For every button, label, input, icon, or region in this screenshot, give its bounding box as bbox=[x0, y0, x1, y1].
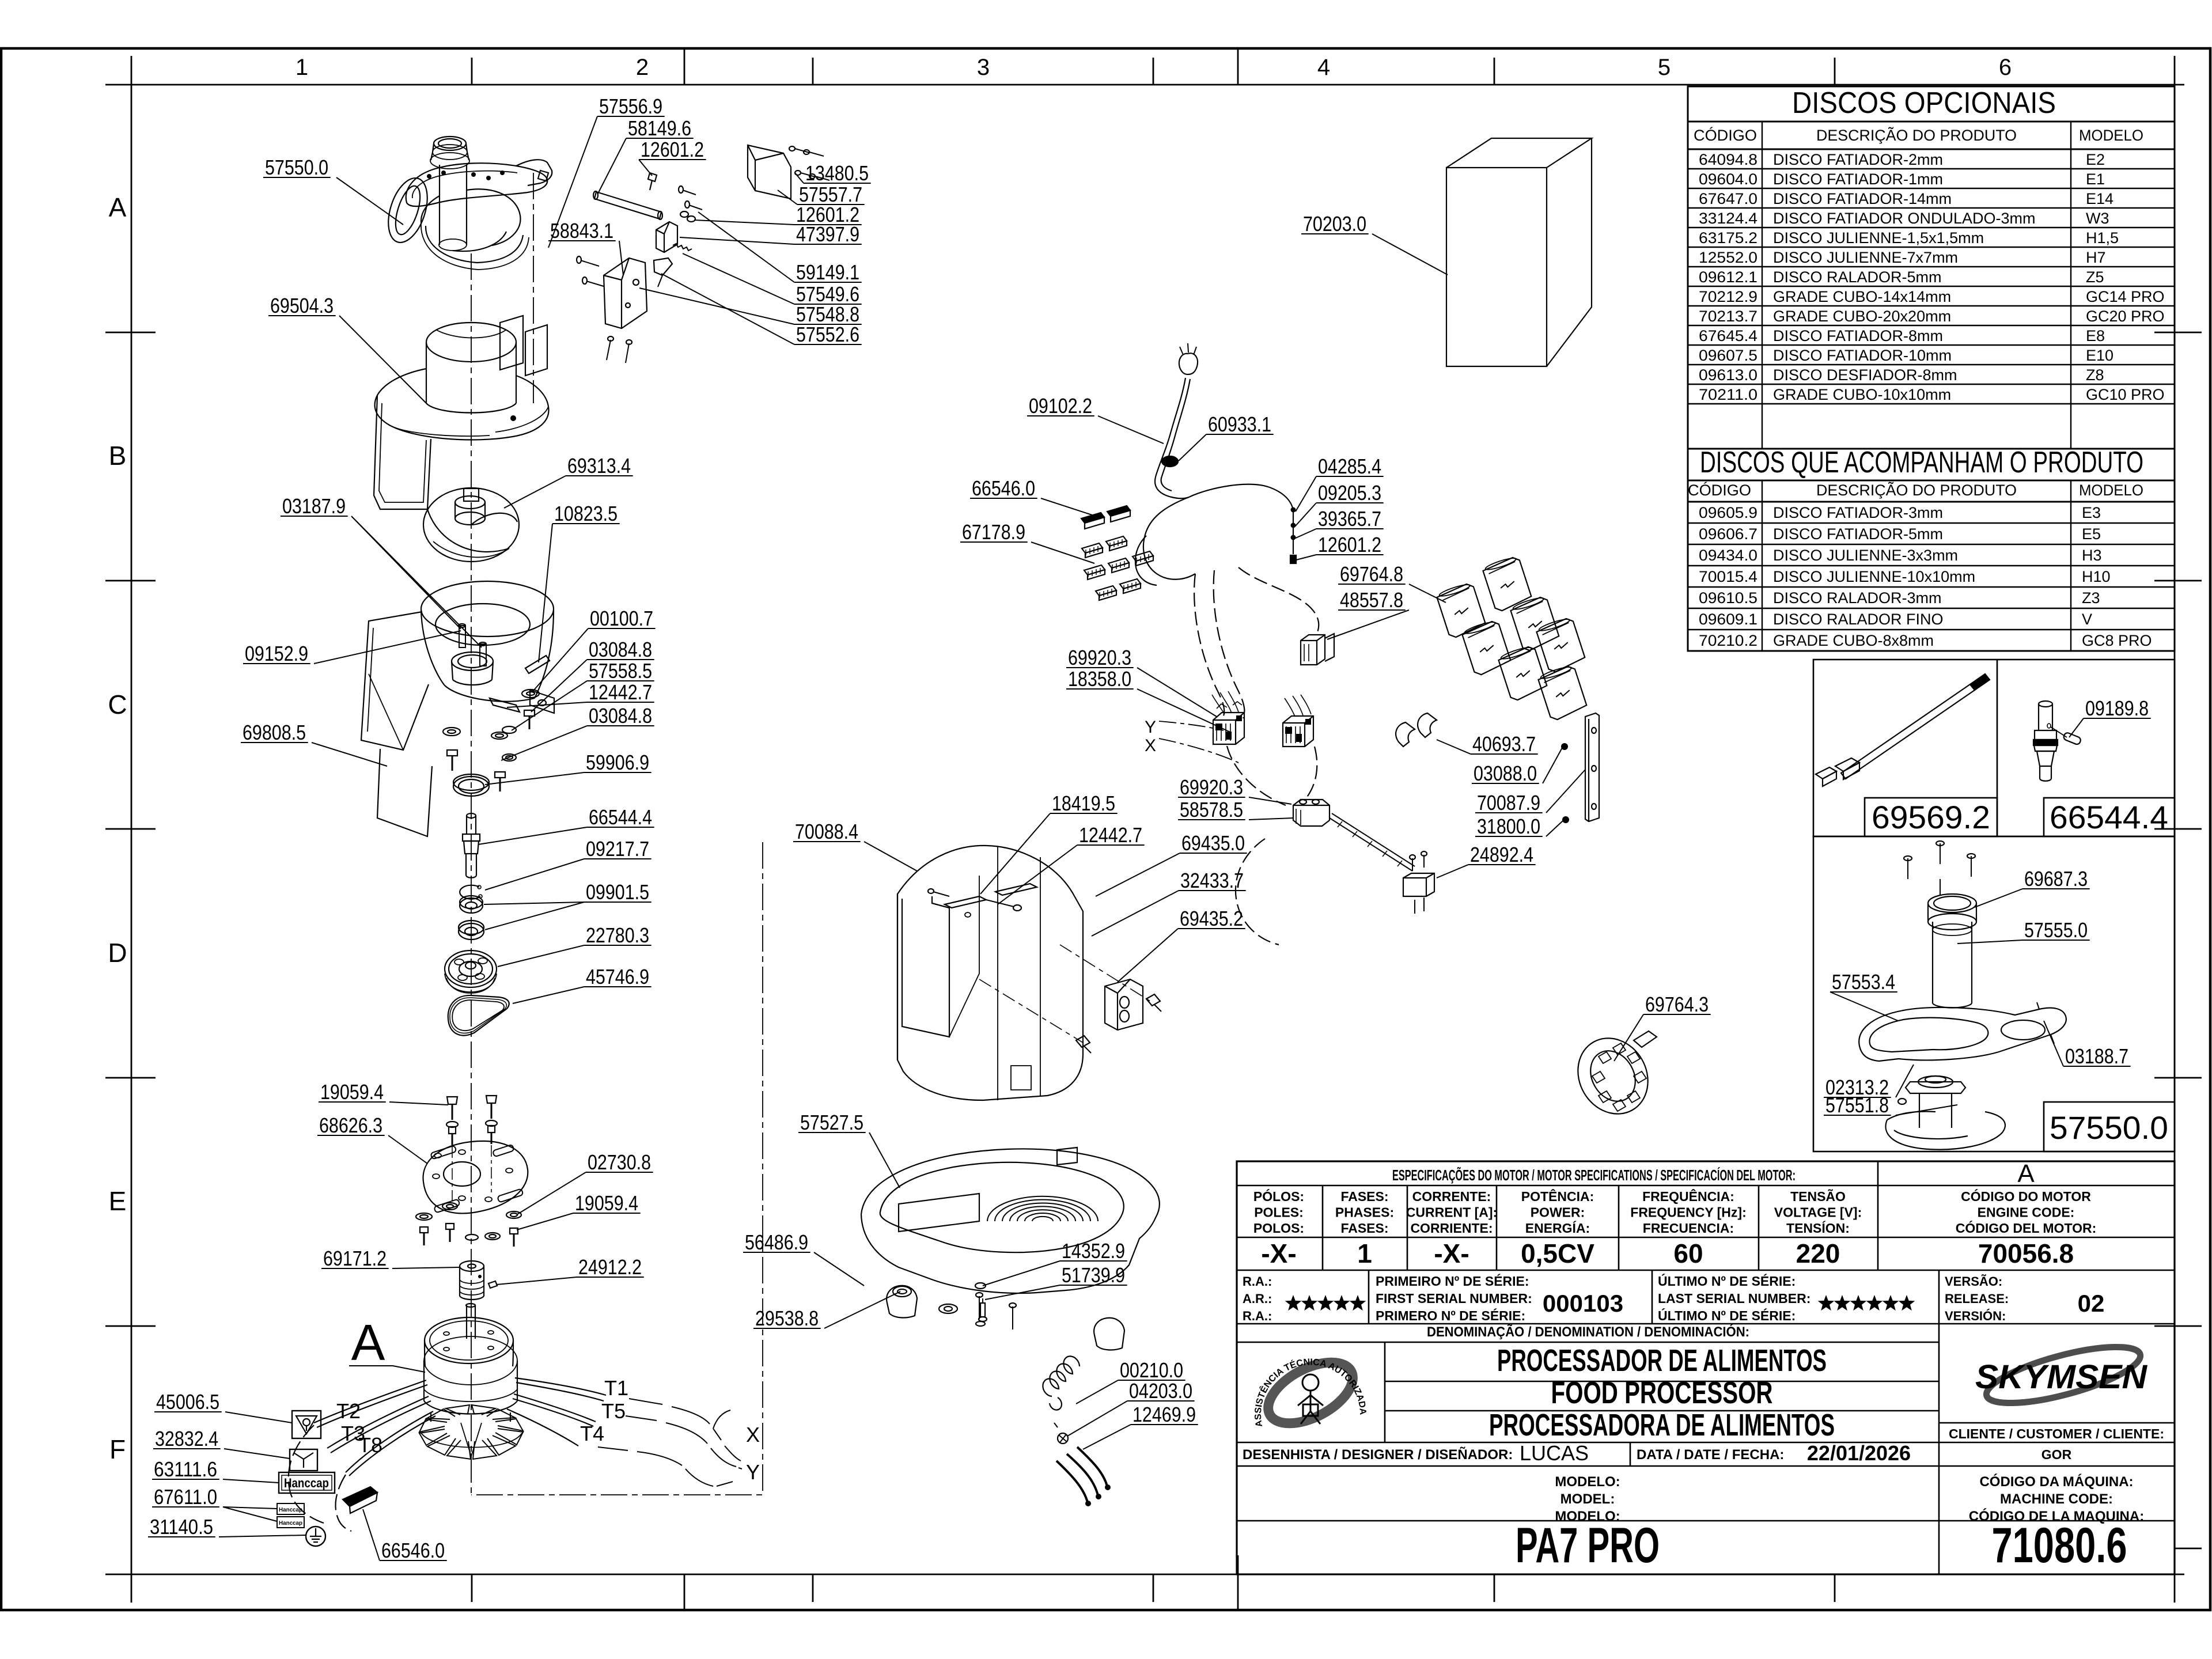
svg-text:Hanccap: Hanccap bbox=[279, 1520, 302, 1527]
svg-text:57550.0: 57550.0 bbox=[265, 156, 328, 179]
svg-text:03188.7: 03188.7 bbox=[2065, 1044, 2128, 1068]
svg-text:E2: E2 bbox=[2086, 151, 2105, 168]
svg-text:MODELO: MODELO bbox=[2079, 127, 2143, 144]
svg-text:19059.4: 19059.4 bbox=[575, 1191, 638, 1215]
svg-text:57552.6: 57552.6 bbox=[796, 323, 859, 346]
svg-text:CORRENTE:: CORRENTE: bbox=[1412, 1189, 1491, 1204]
svg-text:29538.8: 29538.8 bbox=[755, 1306, 819, 1330]
svg-text:09205.3: 09205.3 bbox=[1318, 481, 1381, 505]
svg-text:E14: E14 bbox=[2086, 190, 2113, 207]
svg-text:66546.0: 66546.0 bbox=[972, 476, 1035, 500]
svg-text:E3: E3 bbox=[2082, 504, 2101, 521]
svg-text:T8: T8 bbox=[358, 1433, 382, 1457]
svg-text:09189.8: 09189.8 bbox=[2085, 696, 2149, 720]
svg-text:DENOMINAÇÃO / DENOMINATION / D: DENOMINAÇÃO / DENOMINATION / DENOMINACIÓ… bbox=[1427, 1324, 1749, 1340]
svg-text:ENERGÍA:: ENERGÍA: bbox=[1525, 1220, 1590, 1236]
svg-text:POTÊNCIA:: POTÊNCIA: bbox=[1521, 1188, 1594, 1204]
svg-text:F: F bbox=[109, 1434, 126, 1464]
svg-text:TENSÍON:: TENSÍON: bbox=[1786, 1220, 1850, 1236]
svg-text:FIRST SERIAL NUMBER:: FIRST SERIAL NUMBER: bbox=[1376, 1291, 1532, 1306]
svg-text:09604.0: 09604.0 bbox=[1699, 171, 1758, 188]
svg-text:09102.2: 09102.2 bbox=[1029, 394, 1092, 418]
svg-text:70087.9: 70087.9 bbox=[1477, 791, 1540, 815]
svg-text:48557.8: 48557.8 bbox=[1340, 588, 1403, 612]
svg-text:09152.9: 09152.9 bbox=[245, 642, 308, 665]
svg-text:13480.5: 13480.5 bbox=[805, 161, 869, 185]
svg-text:-X-: -X- bbox=[1261, 1238, 1296, 1268]
svg-text:69920.3: 69920.3 bbox=[1180, 775, 1243, 799]
svg-text:DISCO FATIADOR-5mm: DISCO FATIADOR-5mm bbox=[1773, 525, 1943, 543]
svg-text:R.A.:: R.A.: bbox=[1243, 1274, 1272, 1289]
svg-text:2: 2 bbox=[636, 55, 649, 80]
svg-text:1: 1 bbox=[296, 55, 308, 80]
svg-text:67178.9: 67178.9 bbox=[962, 520, 1025, 544]
svg-text:FASES:: FASES: bbox=[1340, 1221, 1388, 1236]
svg-text:09607.5: 09607.5 bbox=[1699, 347, 1758, 364]
svg-text:A: A bbox=[109, 192, 127, 222]
svg-text:DISCO FATIADOR-3mm: DISCO FATIADOR-3mm bbox=[1773, 504, 1943, 521]
svg-text:69435.0: 69435.0 bbox=[1181, 831, 1245, 855]
svg-text:POWER:: POWER: bbox=[1531, 1205, 1585, 1220]
svg-text:12442.7: 12442.7 bbox=[1079, 823, 1142, 847]
svg-text:TENSÃO: TENSÃO bbox=[1790, 1188, 1846, 1204]
svg-text:57558.5: 57558.5 bbox=[589, 659, 652, 683]
svg-text:GC20 PRO: GC20 PRO bbox=[2086, 308, 2165, 325]
svg-text:12601.2: 12601.2 bbox=[641, 138, 704, 161]
svg-text:ESPECIFICAÇÕES DO MOTOR / MOTO: ESPECIFICAÇÕES DO MOTOR / MOTOR SPECIFIC… bbox=[1392, 1166, 1796, 1184]
svg-text:LAST SERIAL NUMBER:: LAST SERIAL NUMBER: bbox=[1658, 1291, 1810, 1306]
svg-text:70213.7: 70213.7 bbox=[1699, 308, 1758, 325]
svg-text:67611.0: 67611.0 bbox=[154, 1485, 217, 1509]
svg-text:H1,5: H1,5 bbox=[2086, 229, 2119, 247]
svg-text:70211.0: 70211.0 bbox=[1699, 386, 1758, 403]
svg-text:T5: T5 bbox=[601, 1399, 626, 1423]
svg-text:D: D bbox=[108, 938, 127, 968]
svg-text:56486.9: 56486.9 bbox=[745, 1230, 808, 1254]
svg-text:CURRENT [A]:: CURRENT [A]: bbox=[1406, 1205, 1497, 1220]
svg-text:70056.8: 70056.8 bbox=[1978, 1238, 2074, 1268]
svg-text:E8: E8 bbox=[2086, 327, 2105, 344]
svg-text:VOLTAGE [V]:: VOLTAGE [V]: bbox=[1774, 1205, 1862, 1220]
svg-text:GC10 PRO: GC10 PRO bbox=[2086, 386, 2165, 403]
svg-text:09217.7: 09217.7 bbox=[586, 837, 649, 861]
svg-text:DATA / DATE / FECHA:: DATA / DATE / FECHA: bbox=[1637, 1447, 1784, 1463]
svg-text:12442.7: 12442.7 bbox=[589, 680, 652, 704]
svg-text:39365.7: 39365.7 bbox=[1318, 507, 1381, 531]
svg-text:CÓDIGO DA MÁQUINA:: CÓDIGO DA MÁQUINA: bbox=[1979, 1474, 2133, 1490]
svg-text:09610.5: 09610.5 bbox=[1699, 589, 1758, 607]
svg-text:69808.5: 69808.5 bbox=[243, 721, 306, 744]
svg-text:09606.7: 09606.7 bbox=[1699, 525, 1758, 543]
svg-text:DISCO FATIADOR-8mm: DISCO FATIADOR-8mm bbox=[1773, 327, 1943, 344]
svg-text:A: A bbox=[351, 1314, 385, 1371]
svg-text:70203.0: 70203.0 bbox=[1303, 212, 1366, 236]
svg-text:B: B bbox=[109, 441, 127, 471]
svg-text:32433.7: 32433.7 bbox=[1180, 869, 1244, 892]
svg-text:03187.9: 03187.9 bbox=[282, 494, 346, 518]
svg-text:45746.9: 45746.9 bbox=[586, 965, 649, 988]
svg-text:CÓDIGO: CÓDIGO bbox=[1688, 481, 1751, 499]
svg-text:GC8 PRO: GC8 PRO bbox=[2082, 632, 2152, 649]
svg-text:GRADE CUBO-14x14mm: GRADE CUBO-14x14mm bbox=[1773, 288, 1951, 305]
svg-text:24892.4: 24892.4 bbox=[1470, 843, 1533, 866]
svg-text:DISCO JULIENNE-1,5x1,5mm: DISCO JULIENNE-1,5x1,5mm bbox=[1773, 229, 1984, 247]
svg-text:18358.0: 18358.0 bbox=[1068, 667, 1131, 691]
svg-text:60933.1: 60933.1 bbox=[1208, 412, 1271, 436]
svg-text:69764.8: 69764.8 bbox=[1340, 562, 1403, 586]
svg-text:Hanccap: Hanccap bbox=[279, 1507, 302, 1513]
svg-text:E5: E5 bbox=[2082, 525, 2101, 543]
svg-text:T1: T1 bbox=[604, 1376, 628, 1400]
svg-text:X: X bbox=[746, 1423, 760, 1446]
svg-text:Y: Y bbox=[746, 1460, 760, 1484]
svg-text:57527.5: 57527.5 bbox=[800, 1111, 863, 1134]
svg-text:DISCO DESFIADOR-8mm: DISCO DESFIADOR-8mm bbox=[1773, 366, 1957, 384]
svg-text:DISCO FATIADOR-10mm: DISCO FATIADOR-10mm bbox=[1773, 347, 1952, 364]
svg-text:00100.7: 00100.7 bbox=[590, 607, 653, 630]
svg-text:45006.5: 45006.5 bbox=[156, 1390, 219, 1414]
svg-text:32832.4: 32832.4 bbox=[155, 1427, 218, 1450]
svg-text:PÓLOS:: PÓLOS: bbox=[1253, 1188, 1304, 1204]
svg-text:PHASES:: PHASES: bbox=[1335, 1205, 1394, 1220]
svg-text:VERSIÓN:: VERSIÓN: bbox=[1945, 1309, 2006, 1323]
svg-text:DISCO FATIADOR-2mm: DISCO FATIADOR-2mm bbox=[1773, 151, 1943, 168]
svg-text:47397.9: 47397.9 bbox=[796, 222, 859, 246]
svg-text:E: E bbox=[109, 1186, 127, 1216]
svg-text:58149.6: 58149.6 bbox=[628, 116, 691, 140]
svg-text:POLES:: POLES: bbox=[1254, 1205, 1304, 1220]
svg-text:W3: W3 bbox=[2086, 210, 2109, 227]
svg-text:12552.0: 12552.0 bbox=[1699, 249, 1758, 266]
svg-text:70210.2: 70210.2 bbox=[1699, 632, 1758, 649]
svg-text:FREQUENCY [Hz]:: FREQUENCY [Hz]: bbox=[1630, 1205, 1746, 1220]
svg-text:63175.2: 63175.2 bbox=[1699, 229, 1758, 247]
svg-text:ÚLTIMO Nº DE SÉRIE:: ÚLTIMO Nº DE SÉRIE: bbox=[1658, 1273, 1796, 1289]
svg-text:69569.2: 69569.2 bbox=[1872, 799, 1990, 835]
svg-text:57550.0: 57550.0 bbox=[2050, 1109, 2168, 1146]
svg-text:PRIMEIRO Nº DE SÉRIE:: PRIMEIRO Nº DE SÉRIE: bbox=[1376, 1273, 1529, 1289]
svg-text:FOOD PROCESSOR: FOOD PROCESSOR bbox=[1551, 1376, 1773, 1410]
svg-text:DISCO JULIENNE-3x3mm: DISCO JULIENNE-3x3mm bbox=[1773, 547, 1958, 564]
svg-text:69171.2: 69171.2 bbox=[323, 1247, 387, 1270]
svg-text:14352.9: 14352.9 bbox=[1062, 1239, 1125, 1263]
svg-text:31140.5: 31140.5 bbox=[150, 1515, 213, 1539]
svg-text:58843.1: 58843.1 bbox=[550, 219, 613, 243]
svg-text:40693.7: 40693.7 bbox=[1472, 732, 1536, 756]
svg-text:09613.0: 09613.0 bbox=[1699, 366, 1758, 384]
svg-text:GC14 PRO: GC14 PRO bbox=[2086, 288, 2165, 305]
svg-text:59149.1: 59149.1 bbox=[796, 260, 859, 284]
svg-text:DISCOS OPCIONAIS: DISCOS OPCIONAIS bbox=[1792, 86, 2056, 120]
svg-text:H3: H3 bbox=[2082, 547, 2102, 564]
svg-text:1: 1 bbox=[1357, 1238, 1372, 1268]
svg-text:60: 60 bbox=[1673, 1238, 1703, 1268]
svg-text:71080.6: 71080.6 bbox=[1992, 1518, 2127, 1573]
svg-text:24912.2: 24912.2 bbox=[578, 1255, 642, 1279]
svg-text:18419.5: 18419.5 bbox=[1052, 791, 1115, 815]
svg-text:A.R.:: A.R.: bbox=[1243, 1291, 1272, 1306]
svg-text:5: 5 bbox=[1658, 55, 1671, 80]
svg-text:FRECUENCIA:: FRECUENCIA: bbox=[1643, 1221, 1734, 1236]
svg-text:PROCESSADORA DE ALIMENTOS: PROCESSADORA DE ALIMENTOS bbox=[1489, 1408, 1835, 1442]
svg-text:MODEL:: MODEL: bbox=[1560, 1491, 1615, 1507]
svg-text:DISCO RALADOR-5mm: DISCO RALADOR-5mm bbox=[1773, 268, 1942, 286]
svg-text:DISCO RALADOR-3mm: DISCO RALADOR-3mm bbox=[1773, 589, 1942, 607]
svg-text:59906.9: 59906.9 bbox=[586, 751, 649, 774]
svg-text:64094.8: 64094.8 bbox=[1699, 151, 1758, 168]
svg-text:DISCO JULIENNE-10x10mm: DISCO JULIENNE-10x10mm bbox=[1773, 568, 1975, 585]
svg-text:22/01/2026: 22/01/2026 bbox=[1807, 1441, 1911, 1465]
svg-text:R.A.:: R.A.: bbox=[1243, 1309, 1272, 1323]
svg-text:31800.0: 31800.0 bbox=[1477, 815, 1540, 838]
svg-text:Y: Y bbox=[1145, 718, 1156, 737]
svg-text:63111.6: 63111.6 bbox=[154, 1457, 217, 1481]
svg-text:CORRIENTE:: CORRIENTE: bbox=[1410, 1221, 1493, 1236]
svg-text:DESENHISTA / DESIGNER / DISEÑA: DESENHISTA / DESIGNER / DISEÑADOR: bbox=[1243, 1446, 1513, 1463]
svg-text:DESCRIÇÃO DO PRODUTO: DESCRIÇÃO DO PRODUTO bbox=[1816, 126, 2017, 144]
svg-text:-X-: -X- bbox=[1434, 1238, 1469, 1268]
svg-text:10823.5: 10823.5 bbox=[554, 502, 618, 525]
svg-text:02: 02 bbox=[2078, 1290, 2105, 1317]
svg-text:H7: H7 bbox=[2086, 249, 2106, 266]
svg-text:VERSÃO:: VERSÃO: bbox=[1945, 1274, 2002, 1289]
svg-text:Z3: Z3 bbox=[2082, 589, 2100, 607]
svg-text:CÓDIGO DO MOTOR: CÓDIGO DO MOTOR bbox=[1961, 1188, 2091, 1204]
svg-text:FASES:: FASES: bbox=[1340, 1189, 1388, 1204]
svg-text:MACHINE CODE:: MACHINE CODE: bbox=[2000, 1491, 2113, 1507]
svg-text:6: 6 bbox=[1999, 55, 2012, 80]
svg-text:19059.4: 19059.4 bbox=[320, 1080, 384, 1104]
svg-text:PA7 PRO: PA7 PRO bbox=[1516, 1518, 1660, 1573]
svg-text:FREQUÊNCIA:: FREQUÊNCIA: bbox=[1642, 1188, 1734, 1204]
svg-text:DISCO FATIADOR-14mm: DISCO FATIADOR-14mm bbox=[1773, 190, 1952, 207]
svg-text:PRIMERO Nº DE SÉRIE:: PRIMERO Nº DE SÉRIE: bbox=[1376, 1308, 1525, 1323]
svg-text:DISCO JULIENNE-7x7mm: DISCO JULIENNE-7x7mm bbox=[1773, 249, 1958, 266]
svg-text:GRADE CUBO-20x20mm: GRADE CUBO-20x20mm bbox=[1773, 308, 1951, 325]
svg-text:22780.3: 22780.3 bbox=[586, 923, 649, 947]
svg-text:V: V bbox=[2082, 611, 2092, 628]
svg-text:69764.3: 69764.3 bbox=[1645, 993, 1709, 1016]
svg-text:0,5CV: 0,5CV bbox=[1521, 1238, 1594, 1268]
svg-text:GRADE CUBO-8x8mm: GRADE CUBO-8x8mm bbox=[1773, 632, 1934, 649]
svg-text:T4: T4 bbox=[580, 1422, 604, 1445]
svg-text:CÓDIGO: CÓDIGO bbox=[1694, 126, 1757, 144]
svg-text:SKYMSEN: SKYMSEN bbox=[1975, 1358, 2147, 1396]
svg-text:X: X bbox=[1145, 736, 1156, 755]
svg-text:09612.1: 09612.1 bbox=[1699, 268, 1758, 286]
svg-text:67645.4: 67645.4 bbox=[1699, 327, 1758, 344]
svg-text:57555.0: 57555.0 bbox=[2024, 918, 2088, 942]
svg-text:66544.4: 66544.4 bbox=[589, 805, 652, 829]
svg-text:57551.8: 57551.8 bbox=[1825, 1093, 1889, 1117]
svg-text:58578.5: 58578.5 bbox=[1180, 798, 1243, 821]
svg-text:POLOS:: POLOS: bbox=[1253, 1221, 1304, 1236]
svg-text:Z8: Z8 bbox=[2086, 366, 2104, 384]
svg-text:69687.3: 69687.3 bbox=[2024, 867, 2088, 891]
svg-text:69313.4: 69313.4 bbox=[567, 454, 631, 478]
svg-text:69920.3: 69920.3 bbox=[1068, 646, 1131, 669]
svg-text:PROCESSADOR DE ALIMENTOS: PROCESSADOR DE ALIMENTOS bbox=[1497, 1343, 1827, 1378]
svg-text:220: 220 bbox=[1796, 1238, 1840, 1268]
svg-text:RELEASE:: RELEASE: bbox=[1945, 1291, 2009, 1306]
svg-text:57556.9: 57556.9 bbox=[599, 94, 662, 118]
svg-text:69504.3: 69504.3 bbox=[270, 294, 334, 317]
svg-text:03088.0: 03088.0 bbox=[1474, 762, 1537, 785]
svg-text:02730.8: 02730.8 bbox=[588, 1150, 651, 1174]
svg-text:09434.0: 09434.0 bbox=[1699, 547, 1758, 564]
svg-text:CLIENTE / CUSTOMER / CLIENTE:: CLIENTE / CUSTOMER / CLIENTE: bbox=[1949, 1426, 2164, 1441]
svg-text:DESCRIÇÃO DO PRODUTO: DESCRIÇÃO DO PRODUTO bbox=[1816, 481, 2017, 499]
svg-text:57553.4: 57553.4 bbox=[1832, 970, 1895, 994]
svg-text:12601.2: 12601.2 bbox=[1318, 533, 1381, 556]
svg-text:09605.9: 09605.9 bbox=[1699, 504, 1758, 521]
svg-text:DISCO FATIADOR ONDULADO-3mm: DISCO FATIADOR ONDULADO-3mm bbox=[1773, 210, 2036, 227]
svg-text:ENGINE CODE:: ENGINE CODE: bbox=[1978, 1205, 2075, 1220]
svg-text:66546.0: 66546.0 bbox=[381, 1539, 445, 1562]
svg-text:GRADE CUBO-10x10mm: GRADE CUBO-10x10mm bbox=[1773, 386, 1951, 403]
svg-text:Hanccap: Hanccap bbox=[284, 1476, 329, 1490]
svg-text:03084.8: 03084.8 bbox=[589, 704, 652, 728]
svg-text:Z5: Z5 bbox=[2086, 268, 2104, 286]
svg-text:04203.0: 04203.0 bbox=[1129, 1379, 1192, 1403]
svg-text:3: 3 bbox=[977, 55, 990, 80]
svg-text:CÓDIGO DEL MOTOR:: CÓDIGO DEL MOTOR: bbox=[1956, 1220, 2097, 1236]
svg-text:66544.4: 66544.4 bbox=[2050, 799, 2168, 835]
svg-text:51739.9: 51739.9 bbox=[1062, 1263, 1125, 1287]
svg-text:MODELO: MODELO bbox=[2079, 482, 2143, 499]
svg-text:A: A bbox=[2017, 1160, 2035, 1188]
svg-text:MODELO:: MODELO: bbox=[1555, 1474, 1620, 1490]
svg-text:04285.4: 04285.4 bbox=[1318, 454, 1381, 478]
svg-text:09609.1: 09609.1 bbox=[1699, 611, 1758, 628]
svg-text:T2: T2 bbox=[336, 1399, 361, 1423]
svg-text:ÚLTIMO Nº DE SÉRIE:: ÚLTIMO Nº DE SÉRIE: bbox=[1658, 1308, 1796, 1323]
svg-text:E10: E10 bbox=[2086, 347, 2113, 364]
svg-text:12469.9: 12469.9 bbox=[1132, 1403, 1196, 1426]
svg-text:DISCO FATIADOR-1mm: DISCO FATIADOR-1mm bbox=[1773, 171, 1943, 188]
svg-text:03084.8: 03084.8 bbox=[589, 638, 652, 661]
svg-text:70015.4: 70015.4 bbox=[1699, 568, 1758, 585]
svg-text:H10: H10 bbox=[2082, 568, 2111, 585]
svg-text:E1: E1 bbox=[2086, 171, 2105, 188]
svg-text:69435.2: 69435.2 bbox=[1180, 907, 1243, 930]
svg-text:09901.5: 09901.5 bbox=[586, 880, 649, 904]
svg-text:67647.0: 67647.0 bbox=[1699, 190, 1758, 207]
svg-text:70088.4: 70088.4 bbox=[795, 820, 858, 843]
svg-text:DISCOS QUE ACOMPANHAM O PR: DISCOS QUE ACOMPANHAM O PRODUTO bbox=[1700, 446, 2143, 479]
svg-text:DISCO RALADOR FINO: DISCO RALADOR FINO bbox=[1773, 611, 1944, 628]
svg-text:GOR: GOR bbox=[2041, 1447, 2072, 1462]
svg-text:68626.3: 68626.3 bbox=[319, 1113, 382, 1137]
svg-text:LUCAS: LUCAS bbox=[1520, 1441, 1589, 1465]
svg-text:33124.4: 33124.4 bbox=[1699, 210, 1758, 227]
svg-text:00210.0: 00210.0 bbox=[1120, 1358, 1183, 1382]
svg-text:C: C bbox=[108, 690, 127, 719]
svg-text:000103: 000103 bbox=[1543, 1290, 1623, 1317]
svg-text:4: 4 bbox=[1317, 55, 1330, 80]
svg-text:70212.9: 70212.9 bbox=[1699, 288, 1758, 305]
